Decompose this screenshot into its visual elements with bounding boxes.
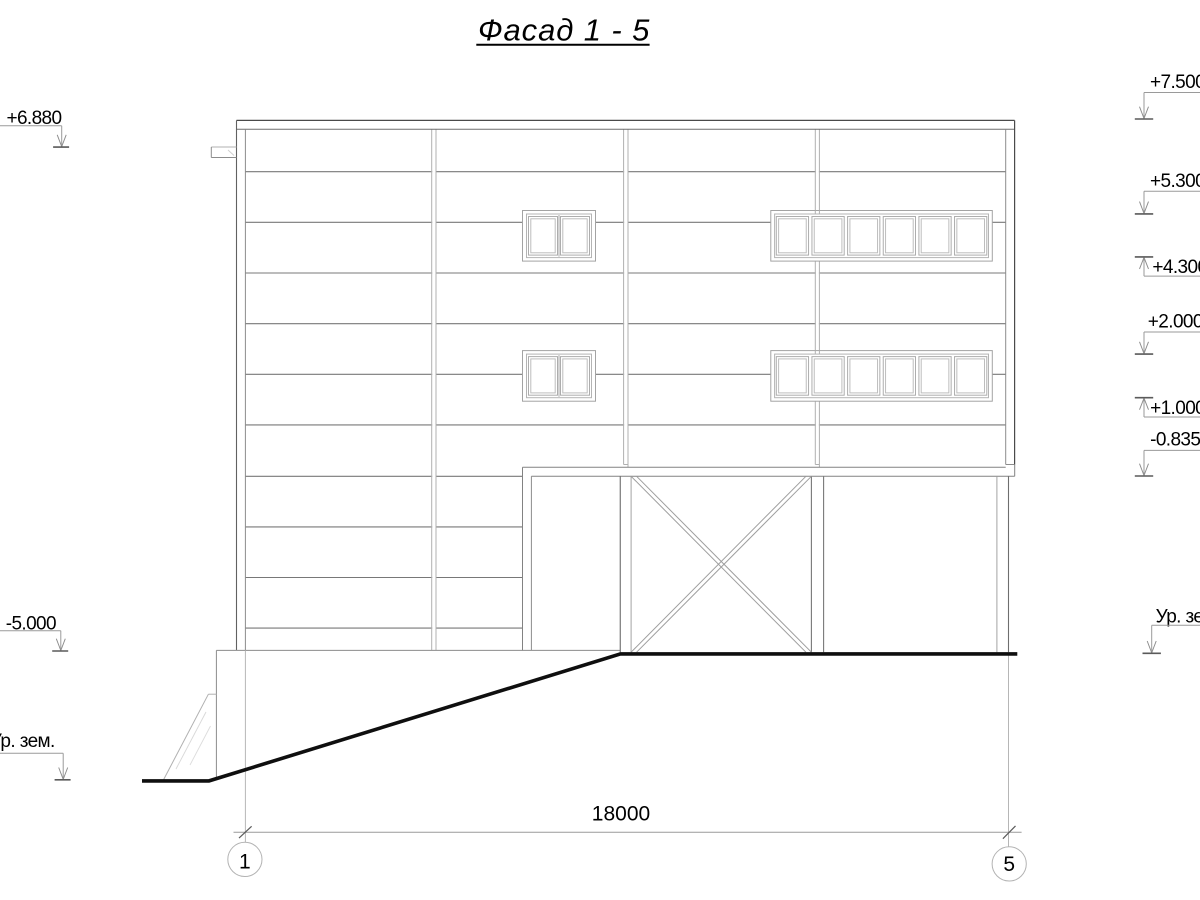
svg-text:Фасад 1 - 5: Фасад 1 - 5	[478, 13, 650, 48]
svg-text:+1.000: +1.000	[1150, 398, 1200, 419]
svg-text:-0.835: -0.835	[1150, 430, 1200, 451]
svg-text:Ур. зем.: Ур. зем.	[1156, 606, 1200, 627]
svg-text:+5.300: +5.300	[1150, 171, 1200, 192]
svg-text:5: 5	[1003, 853, 1015, 876]
svg-text:1: 1	[239, 850, 251, 873]
svg-text:+7.500: +7.500	[1150, 72, 1200, 93]
svg-text:+2.000: +2.000	[1148, 311, 1200, 332]
svg-text:18000: 18000	[592, 802, 650, 825]
svg-text:Ур. зем.: Ур. зем.	[0, 731, 55, 752]
svg-text:+4.300: +4.300	[1152, 257, 1200, 278]
